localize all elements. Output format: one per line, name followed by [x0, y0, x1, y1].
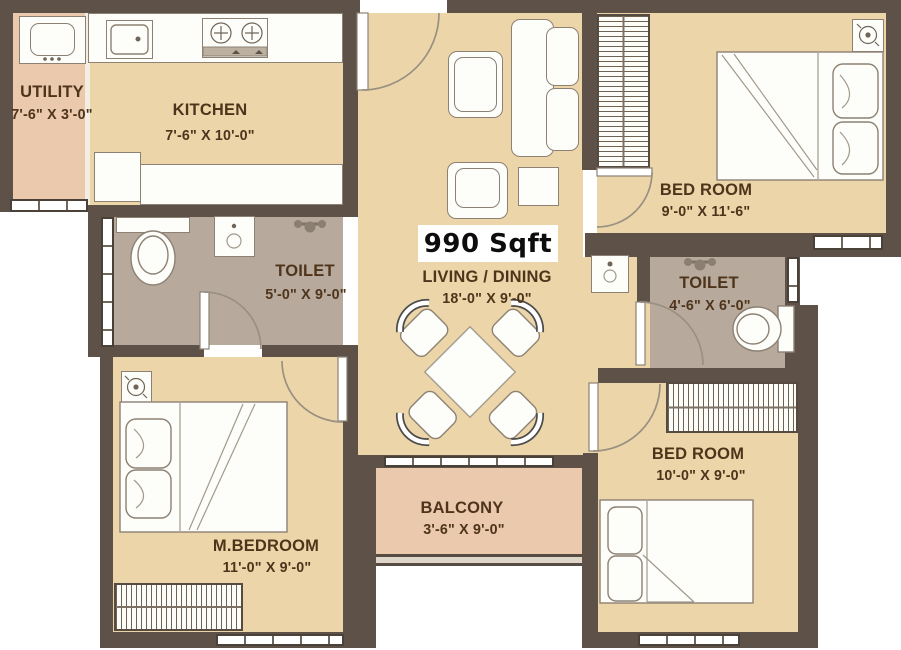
entry-door-swing-icon [357, 13, 439, 90]
toilet1-wc-icon [131, 231, 175, 285]
mbedroom-ceiling-fan-icon [125, 376, 147, 398]
bedroom2-door-swing-icon [589, 383, 660, 451]
washing-machine-detail [43, 57, 61, 61]
kitchen-sink-detail [111, 25, 148, 54]
utility-dims: 7'-6" X 3'-0" [11, 106, 92, 123]
toilet1-door-swing-icon [200, 292, 261, 349]
toilet1-shower-mixer-icon [294, 220, 326, 233]
total-area-badge: 990 Sqft [418, 225, 558, 262]
dining-table-icon [397, 303, 542, 442]
mbedroom-door-swing-icon [282, 357, 347, 422]
balcony-dims: 3'-6" X 9'-0" [423, 521, 504, 538]
mbedroom-label: M.BEDROOM [213, 536, 319, 556]
detail-overlay [0, 0, 901, 650]
toilet2-label: TOILET [679, 273, 739, 293]
utility-label: UTILITY [20, 82, 84, 102]
toilet1-basin-detail [227, 224, 241, 248]
toilet2-shower-mixer-icon [684, 258, 716, 271]
floor-plan: UTILITY 7'-6" X 3'-0" KITCHEN 7'-6" X 10… [0, 0, 901, 650]
bedroom1-ceiling-fan-icon [857, 24, 879, 46]
bedroom2-dims: 10'-0" X 9'-0" [656, 467, 745, 484]
bedroom2-bed-icon [600, 500, 753, 603]
living-dims: 18'-0" X 9'-0" [442, 290, 531, 307]
toilet1-label: TOILET [275, 261, 335, 281]
bedroom1-bed-icon [717, 52, 883, 180]
toilet2-dims: 4'-6" X 6'-0" [669, 297, 750, 314]
balcony-label: BALCONY [421, 498, 504, 518]
bedroom1-door-swing-icon [597, 168, 652, 227]
bedroom1-label: BED ROOM [660, 180, 752, 200]
mbedroom-bed-icon [120, 402, 287, 532]
living-label: LIVING / DINING [422, 267, 551, 287]
kitchen-label: KITCHEN [173, 100, 248, 120]
bedroom1-dims: 9'-0" X 11'-6" [662, 203, 751, 220]
kitchen-dims: 7'-6" X 10'-0" [165, 127, 254, 144]
mbedroom-dims: 11'-0" X 9'-0" [223, 559, 312, 576]
toilet1-dims: 5'-0" X 9'-0" [265, 286, 346, 303]
bedroom2-label: BED ROOM [652, 444, 744, 464]
stove-detail [203, 23, 267, 56]
toilet2-basin-detail [604, 262, 616, 283]
